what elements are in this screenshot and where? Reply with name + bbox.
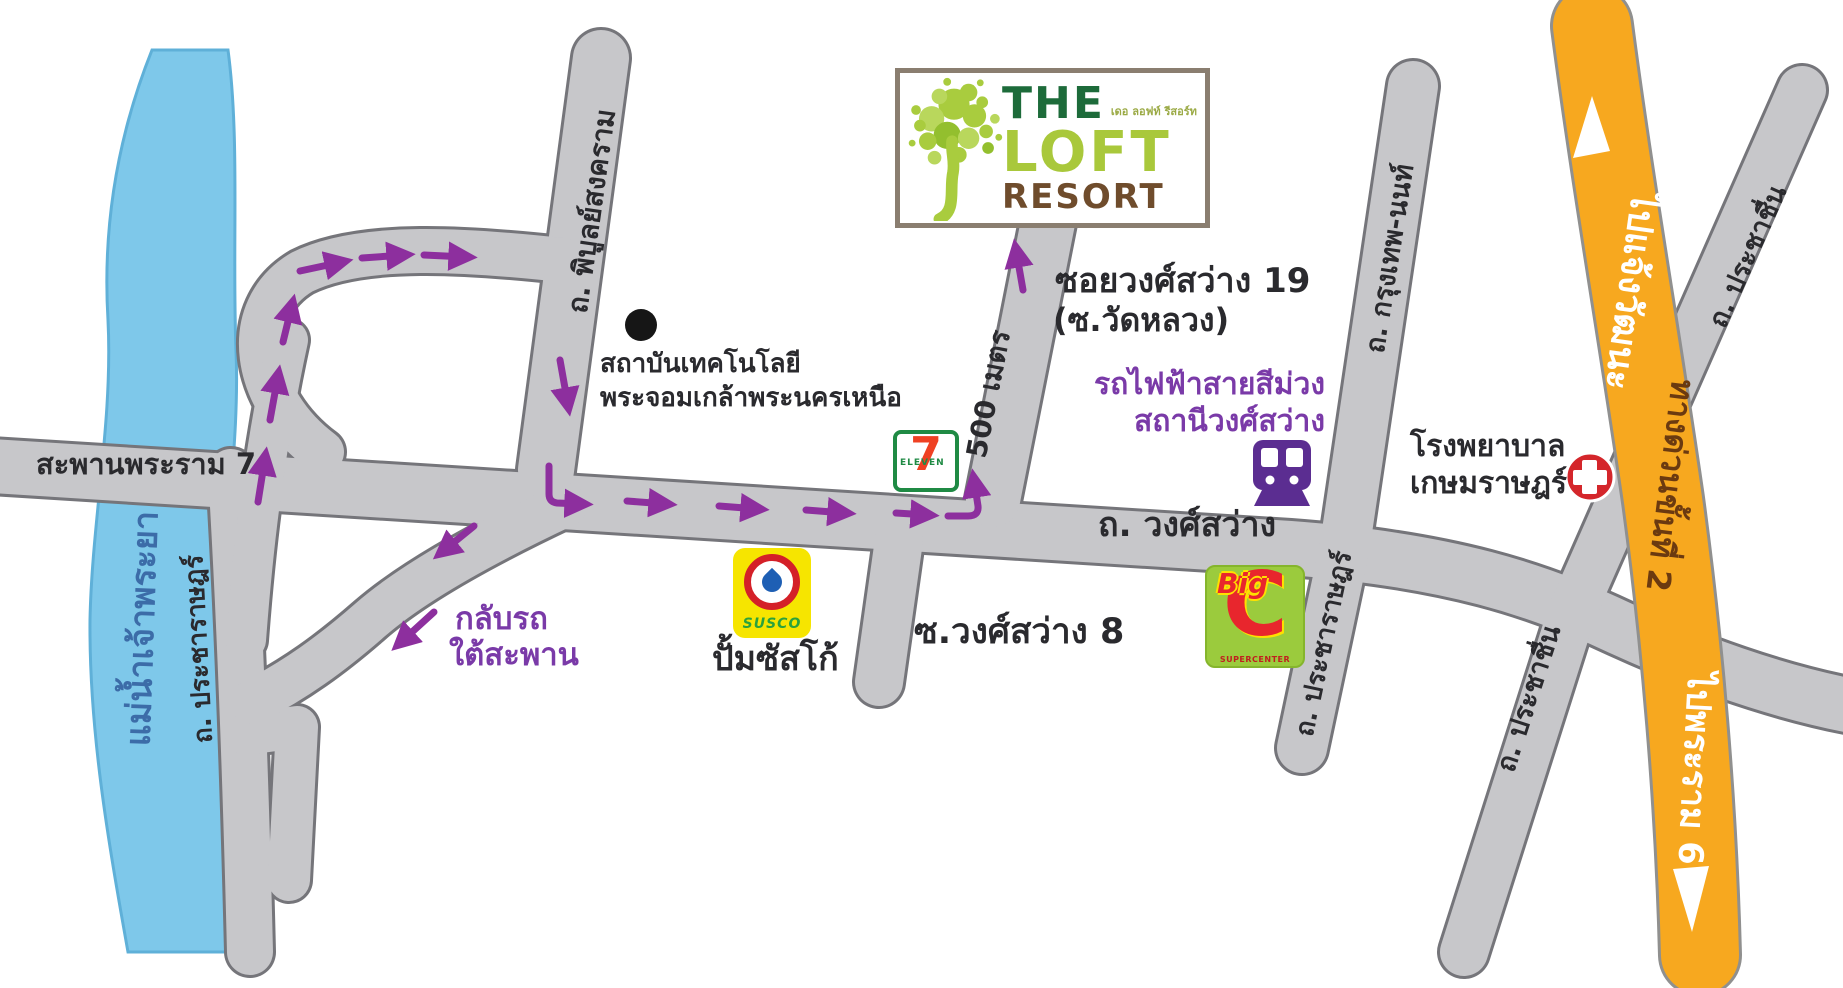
- big-c-subtext: SUPERCENTER: [1207, 655, 1303, 664]
- label-soi19-line2: (ซ.วัดหลวง): [1053, 302, 1229, 339]
- institute-location-dot: [625, 309, 657, 341]
- label-mrt-line2: สถานีวงศ์สว่าง: [1134, 405, 1325, 440]
- label-river: แม่น้ำเจ้าพระยา: [119, 508, 166, 749]
- label-uturn-line1: กลับรถ: [455, 602, 548, 638]
- route-arrow: [806, 510, 845, 513]
- mrt-station-icon: [1253, 440, 1311, 506]
- logo-tree-icon: [900, 75, 1008, 221]
- route-arrow: [719, 506, 758, 509]
- label-soi-wongsawang-8: ซ.วงศ์สว่าง 8: [914, 612, 1124, 652]
- susco-text: SUSCO: [733, 616, 811, 632]
- route-arrow: [424, 255, 466, 257]
- susco-drop-icon: [758, 568, 786, 596]
- logo-tagline: เดอ ลอฟท์ รีสอร์ท: [1111, 102, 1197, 120]
- loft-resort-map: สะพานพระราม 7 แม่น้ำเจ้าพระยา ถ. ประชารา…: [0, 0, 1843, 988]
- susco-gas-icon: SUSCO: [733, 548, 811, 638]
- route-arrow: [896, 513, 928, 515]
- label-susco: ปั้มซัสโก้: [712, 640, 839, 679]
- route-arrow: [362, 255, 404, 258]
- label-mrt-line1: รถไฟฟ้าสายสีม่วง: [1094, 368, 1325, 403]
- loft-resort-logo: THE เดอ ลอฟท์ รีสอร์ท LOFT RESORT: [895, 68, 1210, 228]
- route-arrow: [627, 501, 666, 504]
- susco-ring-icon: [744, 554, 800, 610]
- big-c-big-text: Big: [1217, 567, 1268, 600]
- seven-eleven-text: ELEVEN: [900, 458, 945, 468]
- label-soi19-line1: ซอยวงศ์สว่าง 19: [1055, 262, 1310, 301]
- seven-eleven-7: 7: [910, 427, 942, 481]
- label-hospital-line2: เกษมราษฎร์: [1410, 467, 1567, 502]
- road-soi-8: [879, 540, 899, 682]
- label-rama7-bridge: สะพานพระราม 7: [36, 448, 256, 481]
- label-hospital-line1: โรงพยาบาล: [1410, 430, 1565, 465]
- hospital-cross-icon: [1566, 453, 1614, 501]
- seven-eleven-icon: 7 ELEVEN: [893, 430, 959, 492]
- logo-wordmark: THE เดอ ลอฟท์ รีสอร์ท LOFT RESORT: [1002, 82, 1197, 213]
- logo-resort: RESORT: [1002, 180, 1197, 214]
- big-c-icon: Big C SUPERCENTER: [1205, 565, 1305, 668]
- label-institute-line1: สถาบันเทคโนโลยี: [600, 350, 801, 380]
- label-uturn-line2: ใต้สะพาน: [449, 638, 579, 674]
- logo-loft: LOFT: [1002, 126, 1197, 179]
- label-institute-line2: พระจอมเกล้าพระนครเหนือ: [600, 384, 902, 414]
- label-wongsawang-road: ถ. วงศ์สว่าง: [1098, 506, 1276, 545]
